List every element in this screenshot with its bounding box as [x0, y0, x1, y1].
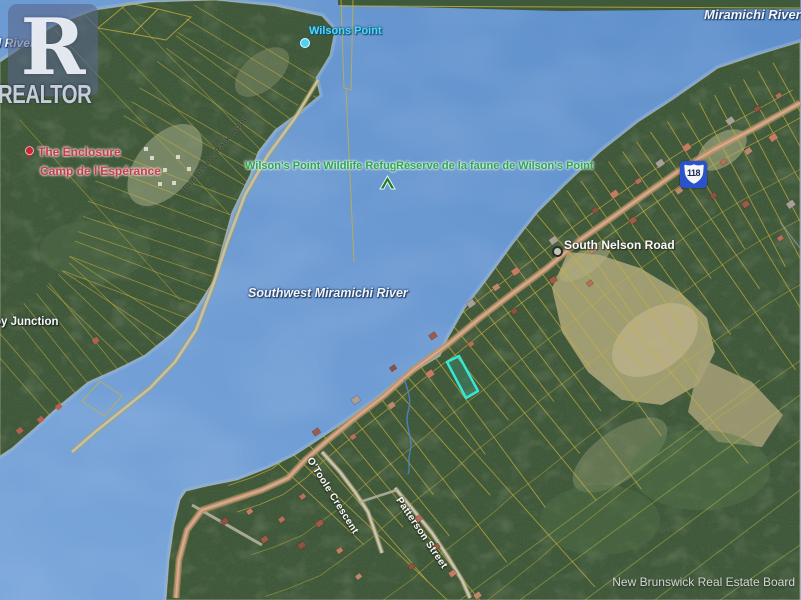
satellite-map-canvas[interactable]: Miramichi River d River Wilsons Point Wi… [0, 0, 801, 600]
wilsons-point-marker-icon [300, 38, 310, 48]
realtor-logo-watermark: R [8, 4, 98, 96]
route-118-shield-icon: 118 [680, 161, 707, 188]
road-point-marker-icon [552, 246, 563, 257]
campsite-tent-icon [379, 175, 396, 195]
route-118-number: 118 [680, 168, 707, 178]
map-terrain-layer [0, 0, 801, 600]
realtor-r-glyph: R [8, 0, 98, 96]
park-pin-icon [24, 146, 35, 164]
